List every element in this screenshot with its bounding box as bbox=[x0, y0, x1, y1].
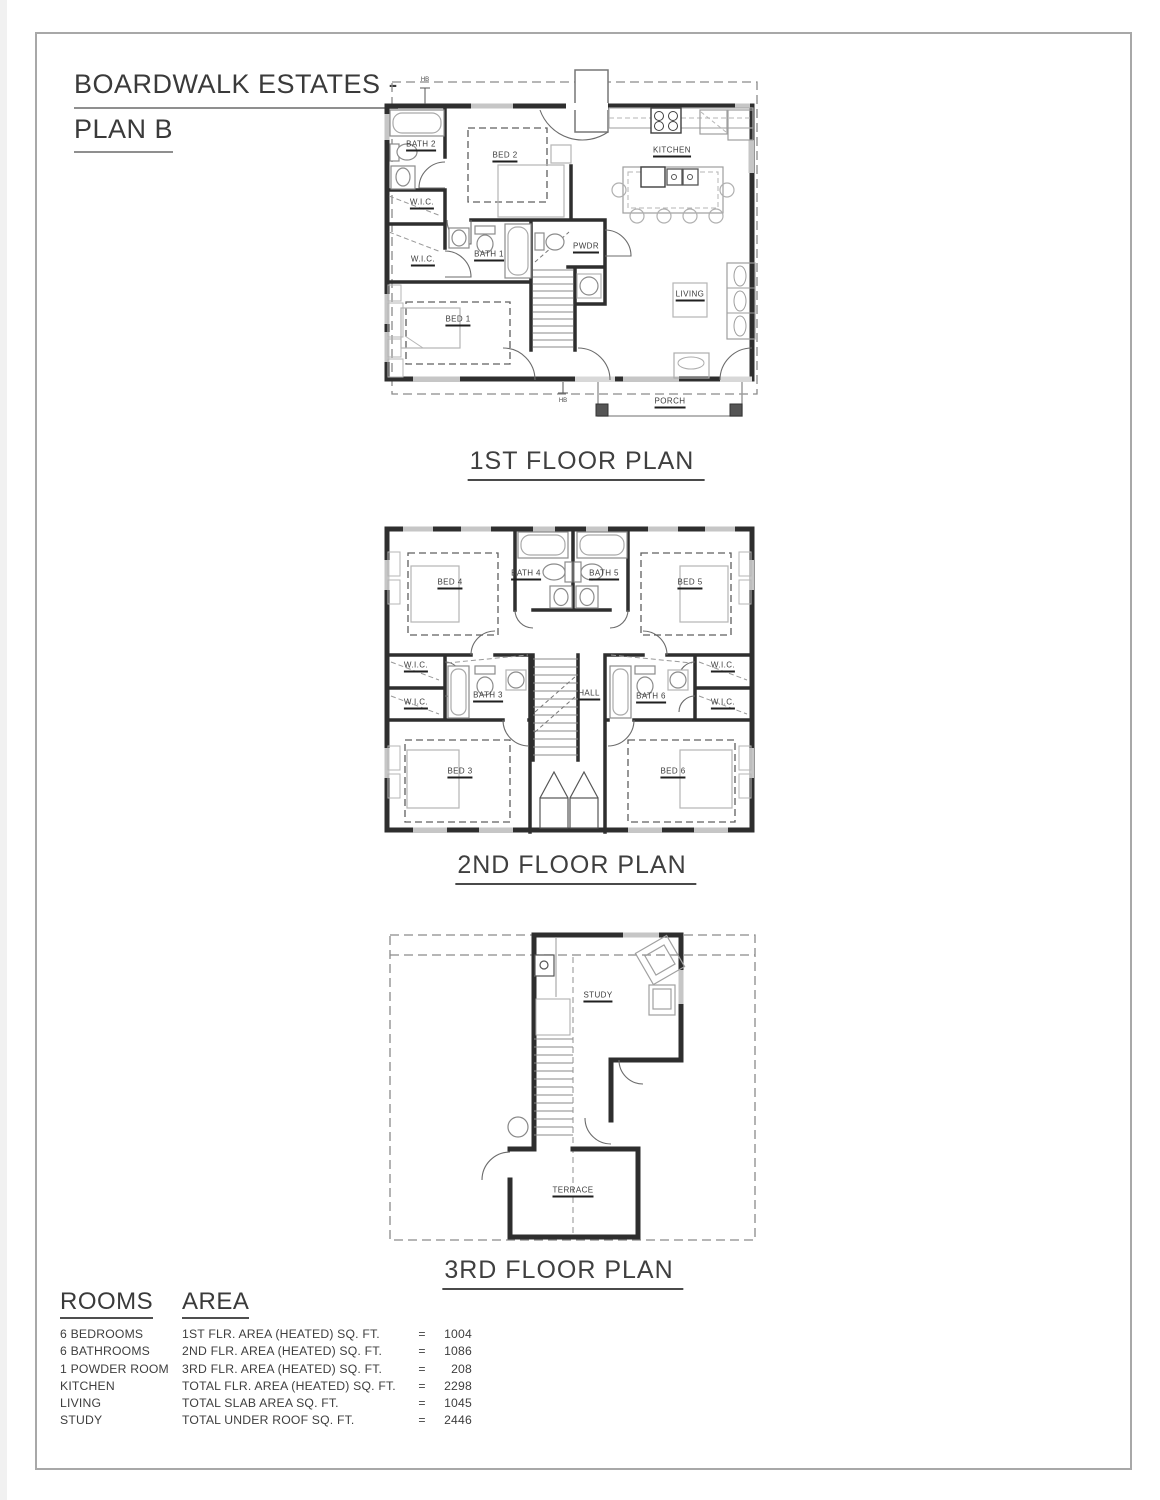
row-value: 208 bbox=[434, 1361, 472, 1378]
sheet-title: BOARDWALK ESTATES - PLAN B bbox=[74, 64, 398, 153]
first-floor-plan: BATH 2 W.I.C. W.I.C. BED 2 BATH 1 PWDR K… bbox=[383, 66, 767, 422]
room-label-bed-6: BED 6 bbox=[660, 768, 685, 779]
row-area: 1ST FLR. AREA (HEATED) SQ. FT. bbox=[182, 1326, 410, 1343]
row-value: 2298 bbox=[434, 1378, 472, 1395]
stairs bbox=[533, 659, 578, 755]
walls bbox=[510, 935, 681, 1237]
rooms-header: ROOMS bbox=[60, 1288, 153, 1319]
row-value: 1045 bbox=[434, 1395, 472, 1412]
sheet-title-line1: BOARDWALK ESTATES - bbox=[74, 64, 398, 109]
walls bbox=[387, 106, 752, 379]
room-label-bath-2: BATH 2 bbox=[406, 141, 436, 152]
room-label-wic-lower: W.I.C. bbox=[411, 256, 435, 267]
bed1-furniture bbox=[388, 285, 510, 377]
row-value: 1086 bbox=[434, 1343, 472, 1360]
room-label-bed-2: BED 2 bbox=[492, 152, 517, 163]
summary-row: STUDY TOTAL UNDER ROOF SQ. FT. = 2446 bbox=[60, 1412, 472, 1429]
summary-row: 6 BATHROOMS 2ND FLR. AREA (HEATED) SQ. F… bbox=[60, 1343, 472, 1360]
second-floor-plan: BED 4 BATH 4 BATH 5 BED 5 W.I.C. W.I.C. … bbox=[383, 520, 763, 838]
room-label-wic-upper: W.I.C. bbox=[410, 199, 434, 210]
first-floor-caption: 1ST FLOOR PLAN bbox=[468, 447, 705, 481]
second-floor-caption: 2ND FLOOR PLAN bbox=[455, 851, 696, 885]
hose-bib-top-label: HB bbox=[421, 77, 429, 83]
row-room: KITCHEN bbox=[60, 1378, 182, 1395]
rooms-area-summary: ROOMS AREA 6 BEDROOMS 1ST FLR. AREA (HEA… bbox=[60, 1288, 500, 1324]
room-label-bed-5: BED 5 bbox=[677, 579, 702, 590]
living-furniture bbox=[673, 263, 755, 378]
hose-bib-bottom-mark bbox=[558, 382, 568, 393]
room-label-living: LIVING bbox=[676, 291, 705, 302]
room-label-wic-left-lower: W.I.C. bbox=[404, 699, 428, 710]
room-label-bath-1: BATH 1 bbox=[474, 251, 504, 262]
row-value: 2446 bbox=[434, 1412, 472, 1429]
room-label-terrace: TERRACE bbox=[552, 1187, 593, 1198]
row-equals: = bbox=[410, 1378, 434, 1395]
room-label-bath-5: BATH 5 bbox=[589, 570, 619, 581]
door-swings bbox=[482, 1060, 643, 1180]
row-room: STUDY bbox=[60, 1412, 182, 1429]
row-area: TOTAL UNDER ROOF SQ. FT. bbox=[182, 1412, 410, 1429]
room-label-study: STUDY bbox=[583, 992, 612, 1003]
room-label-pwdr: PWDR bbox=[573, 243, 599, 254]
room-label-wic-right-upper: W.I.C. bbox=[711, 662, 735, 673]
hose-bib-bottom-label: HB bbox=[559, 398, 567, 404]
third-floor-plan: STUDY TERRACE bbox=[383, 925, 765, 1245]
floor-plan-sheet: BOARDWALK ESTATES - PLAN B bbox=[0, 0, 1160, 1500]
second-floor-drawing bbox=[383, 520, 763, 838]
room-label-bath-3: BATH 3 bbox=[473, 692, 503, 703]
room-label-bath-6: BATH 6 bbox=[636, 693, 666, 704]
bed2-furniture bbox=[468, 128, 571, 217]
kitchen-island bbox=[612, 167, 734, 223]
row-area: TOTAL SLAB AREA SQ. FT. bbox=[182, 1395, 410, 1412]
row-area: 2ND FLR. AREA (HEATED) SQ. FT. bbox=[182, 1343, 410, 1360]
hose-bib-top-mark bbox=[420, 88, 430, 104]
row-room: 1 POWDER ROOM bbox=[60, 1361, 182, 1378]
scan-edge bbox=[0, 0, 7, 1500]
summary-row: 6 BEDROOMS 1ST FLR. AREA (HEATED) SQ. FT… bbox=[60, 1326, 472, 1343]
row-room: 6 BATHROOMS bbox=[60, 1343, 182, 1360]
entry-vestibule bbox=[575, 70, 608, 132]
row-equals: = bbox=[410, 1395, 434, 1412]
summary-rows: 6 BEDROOMS 1ST FLR. AREA (HEATED) SQ. FT… bbox=[60, 1326, 472, 1430]
room-label-wic-right-lower: W.I.C. bbox=[711, 699, 735, 710]
row-room: LIVING bbox=[60, 1395, 182, 1412]
room-label-porch: PORCH bbox=[655, 398, 686, 409]
third-floor-caption: 3RD FLOOR PLAN bbox=[442, 1256, 683, 1290]
room-label-bed-4: BED 4 bbox=[437, 579, 462, 590]
row-area: 3RD FLR. AREA (HEATED) SQ. FT. bbox=[182, 1361, 410, 1378]
room-label-bed-1: BED 1 bbox=[445, 316, 470, 327]
sheet-title-line2: PLAN B bbox=[74, 109, 173, 154]
row-equals: = bbox=[410, 1343, 434, 1360]
room-label-bath-4: BATH 4 bbox=[511, 570, 541, 581]
summary-row: KITCHEN TOTAL FLR. AREA (HEATED) SQ. FT.… bbox=[60, 1378, 472, 1395]
summary-row: 1 POWDER ROOM 3RD FLR. AREA (HEATED) SQ.… bbox=[60, 1361, 472, 1378]
row-room: 6 BEDROOMS bbox=[60, 1326, 182, 1343]
bar-stools bbox=[612, 183, 734, 223]
area-header: AREA bbox=[182, 1288, 249, 1319]
kitchen-counters bbox=[609, 108, 753, 140]
study-chairs bbox=[635, 935, 684, 1015]
wet-bar-sink bbox=[535, 955, 554, 976]
column bbox=[508, 1117, 528, 1137]
row-equals: = bbox=[410, 1361, 434, 1378]
linen-closet bbox=[540, 772, 598, 828]
row-area: TOTAL FLR. AREA (HEATED) SQ. FT. bbox=[182, 1378, 410, 1395]
room-label-wic-left-upper: W.I.C. bbox=[404, 662, 428, 673]
row-equals: = bbox=[410, 1326, 434, 1343]
room-label-bed-3: BED 3 bbox=[447, 768, 472, 779]
summary-row: LIVING TOTAL SLAB AREA SQ. FT. = 1045 bbox=[60, 1395, 472, 1412]
room-label-kitchen: KITCHEN bbox=[653, 147, 691, 158]
row-equals: = bbox=[410, 1412, 434, 1429]
room-label-hall: HALL bbox=[578, 690, 600, 701]
row-value: 1004 bbox=[434, 1326, 472, 1343]
